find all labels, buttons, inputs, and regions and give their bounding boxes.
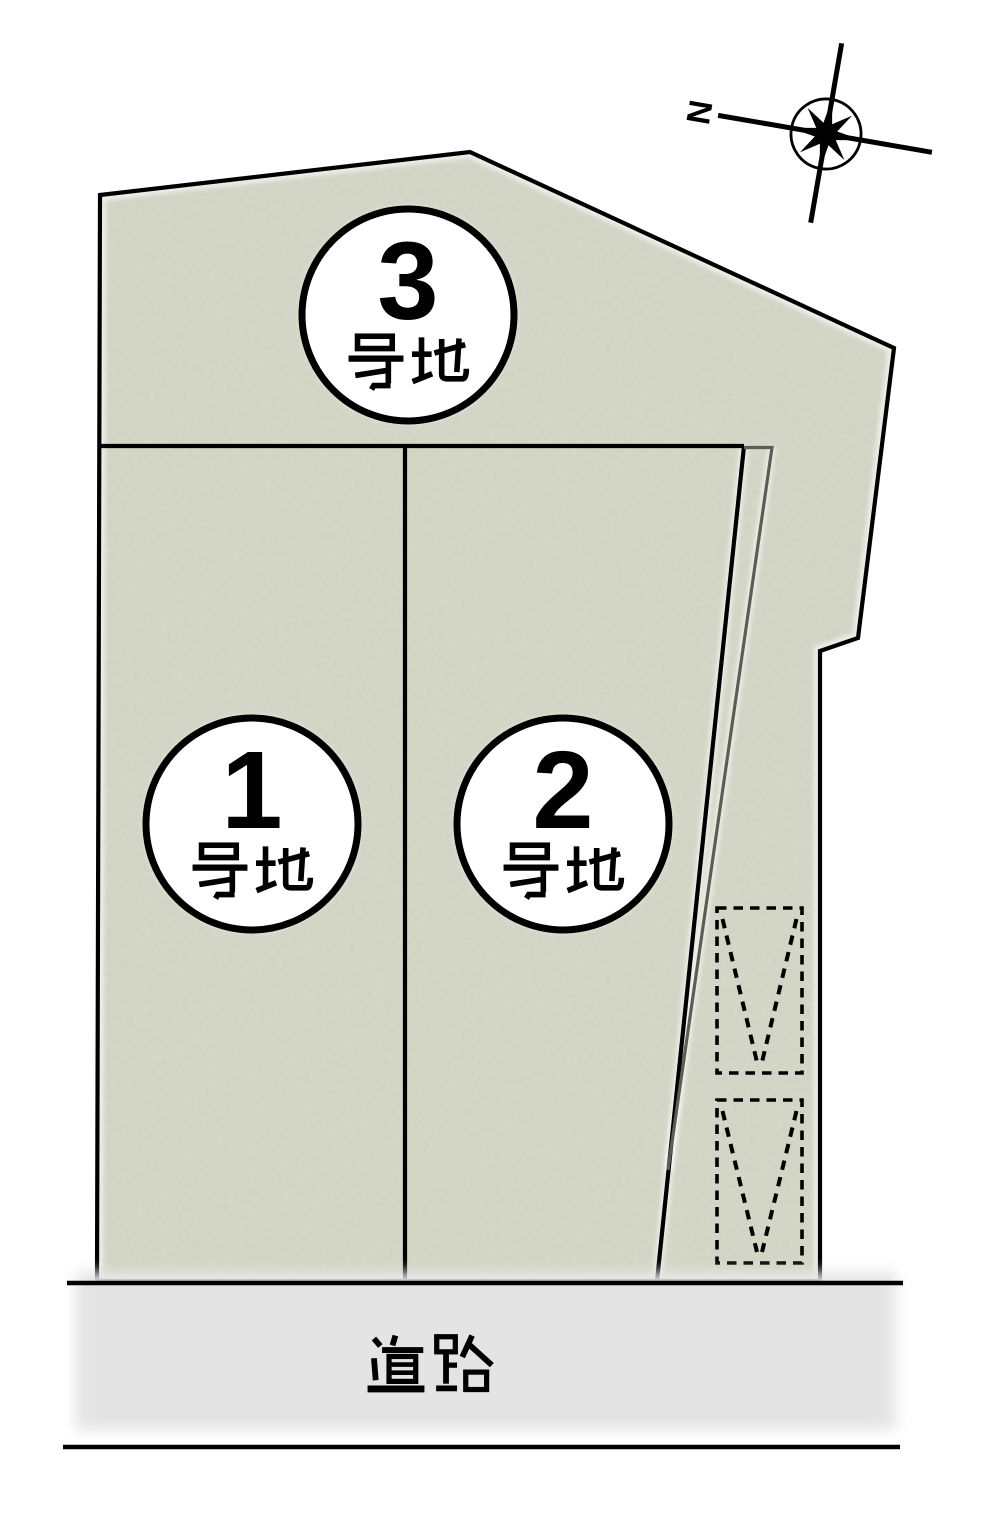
svg-text:1: 1 — [221, 729, 282, 852]
svg-text:3: 3 — [377, 220, 438, 343]
svg-text:2: 2 — [532, 729, 593, 852]
